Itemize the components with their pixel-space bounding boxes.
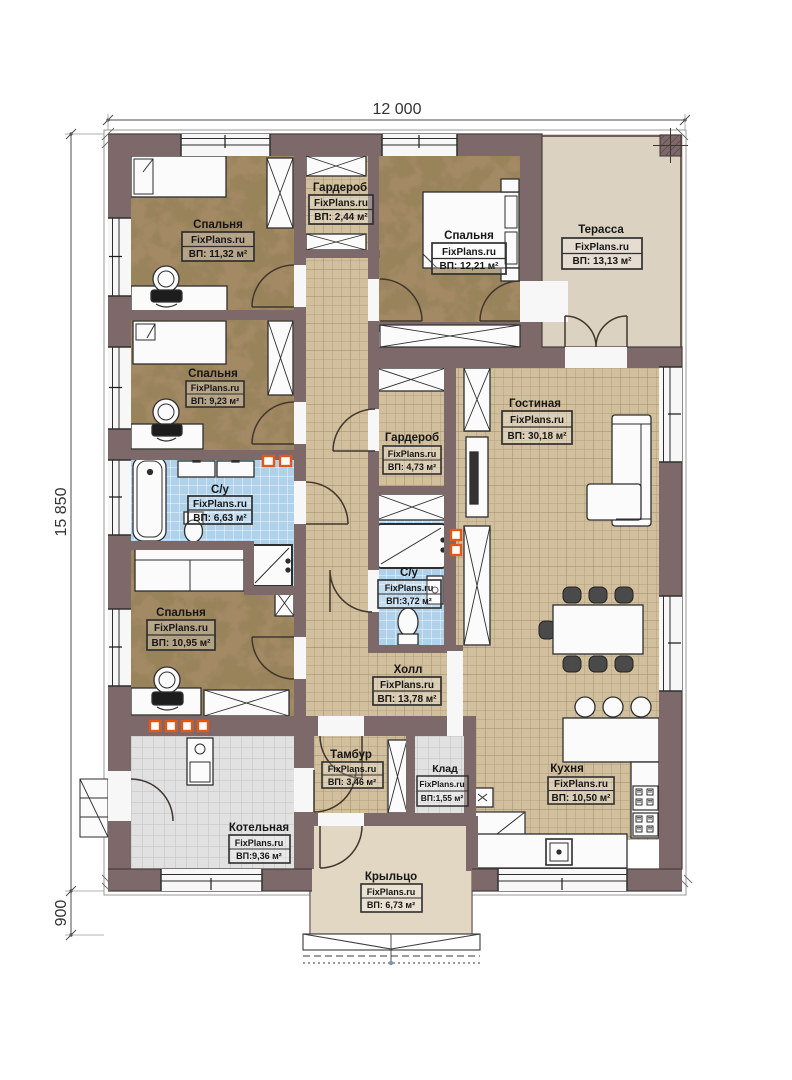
svg-text:ВП: 6,73 м²: ВП: 6,73 м² <box>367 900 415 910</box>
svg-text:ВП: 2,44 м²: ВП: 2,44 м² <box>314 212 368 223</box>
svg-text:FixPlans.ru: FixPlans.ru <box>388 449 437 459</box>
svg-text:ВП:3,72 м²: ВП:3,72 м² <box>386 596 432 606</box>
svg-text:ВП: 4,73 м²: ВП: 4,73 м² <box>388 462 436 472</box>
svg-text:Спальня: Спальня <box>444 230 494 242</box>
svg-text:FixPlans.ru: FixPlans.ru <box>235 838 284 848</box>
svg-text:FixPlans.ru: FixPlans.ru <box>442 247 496 258</box>
svg-text:FixPlans.ru: FixPlans.ru <box>419 779 464 789</box>
svg-text:ВП:1,55 м²: ВП:1,55 м² <box>421 793 464 803</box>
svg-text:Спальня: Спальня <box>193 219 243 231</box>
svg-text:FixPlans.ru: FixPlans.ru <box>154 623 208 634</box>
svg-text:Спальня: Спальня <box>188 368 238 380</box>
svg-text:Спальня: Спальня <box>156 607 206 619</box>
svg-text:Котельная: Котельная <box>229 822 289 834</box>
svg-text:ВП: 9,23 м²: ВП: 9,23 м² <box>191 396 239 406</box>
svg-text:FixPlans.ru: FixPlans.ru <box>554 779 608 790</box>
svg-text:ВП: 3,46 м²: ВП: 3,46 м² <box>328 777 376 787</box>
svg-text:15 850: 15 850 <box>53 487 70 536</box>
svg-text:С/у: С/у <box>400 567 419 579</box>
svg-text:900: 900 <box>53 900 70 927</box>
svg-text:ВП: 6,63 м²: ВП: 6,63 м² <box>193 513 247 524</box>
svg-text:FixPlans.ru: FixPlans.ru <box>193 499 247 510</box>
svg-text:ВП: 10,95 м²: ВП: 10,95 м² <box>151 638 211 649</box>
svg-text:FixPlans.ru: FixPlans.ru <box>191 383 240 393</box>
svg-text:FixPlans.ru: FixPlans.ru <box>575 242 629 253</box>
svg-text:FixPlans.ru: FixPlans.ru <box>367 887 416 897</box>
svg-text:ВП: 30,18 м²: ВП: 30,18 м² <box>507 431 567 442</box>
svg-text:Гостиная: Гостиная <box>509 398 561 410</box>
svg-text:С/у: С/у <box>211 484 230 496</box>
svg-text:FixPlans.ru: FixPlans.ru <box>380 680 434 691</box>
svg-text:Тамбур: Тамбур <box>330 749 372 761</box>
svg-text:ВП: 10,50 м²: ВП: 10,50 м² <box>551 793 611 804</box>
svg-text:Терасса: Терасса <box>578 224 624 236</box>
svg-text:Кухня: Кухня <box>550 763 584 775</box>
svg-text:Клад: Клад <box>432 763 458 775</box>
svg-text:ВП: 11,32 м²: ВП: 11,32 м² <box>189 249 248 260</box>
svg-text:FixPlans.ru: FixPlans.ru <box>385 583 434 593</box>
svg-text:FixPlans.ru: FixPlans.ru <box>314 198 368 209</box>
svg-text:Крыльцо: Крыльцо <box>365 871 417 883</box>
svg-text:Гардероб: Гардероб <box>313 182 367 194</box>
svg-text:12 000: 12 000 <box>373 101 422 118</box>
svg-text:ВП: 13,78 м²: ВП: 13,78 м² <box>377 694 437 705</box>
svg-text:FixPlans.ru: FixPlans.ru <box>328 764 377 774</box>
svg-text:FixPlans.ru: FixPlans.ru <box>510 415 564 426</box>
svg-text:Гардероб: Гардероб <box>385 432 439 444</box>
svg-text:Холл: Холл <box>394 664 423 676</box>
svg-text:ВП: 12,21 м²: ВП: 12,21 м² <box>439 261 499 272</box>
svg-text:ВП: 13,13 м²: ВП: 13,13 м² <box>572 256 632 267</box>
svg-text:FixPlans.ru: FixPlans.ru <box>191 235 245 246</box>
svg-text:ВП:9,36 м²: ВП:9,36 м² <box>236 851 282 861</box>
